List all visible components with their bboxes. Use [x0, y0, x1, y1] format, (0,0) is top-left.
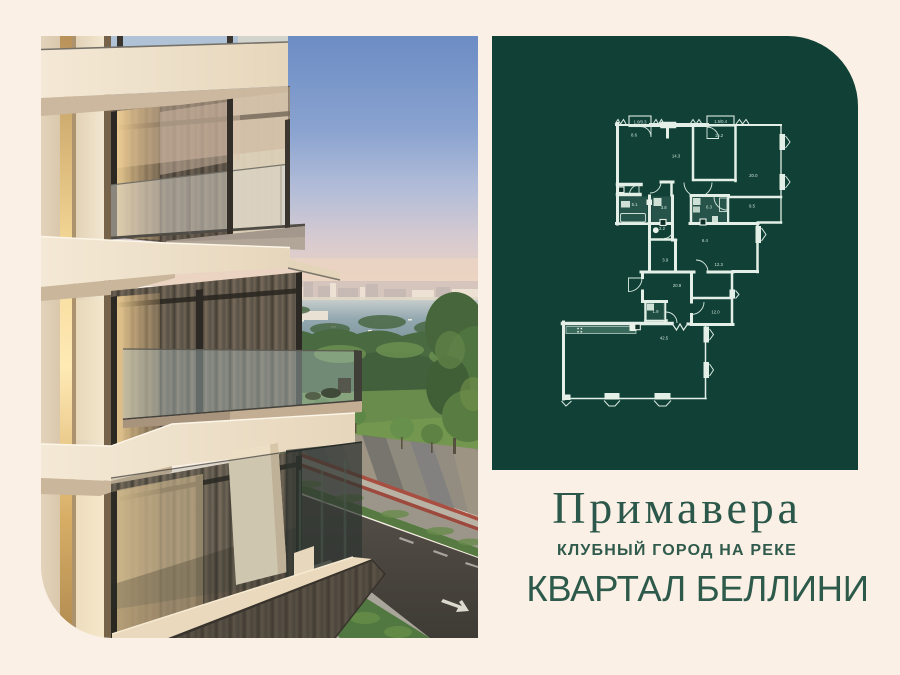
svg-text:1.9: 1.9	[653, 309, 660, 314]
svg-text:20.9: 20.9	[673, 283, 682, 288]
svg-text:2.2: 2.2	[659, 226, 666, 231]
svg-text:12.3: 12.3	[715, 262, 724, 267]
svg-text:20.0: 20.0	[749, 173, 758, 178]
svg-text:1.5/0.4: 1.5/0.4	[714, 119, 727, 124]
svg-text:15.2: 15.2	[715, 133, 724, 138]
svg-text:5.1: 5.1	[632, 202, 639, 207]
svg-text:1.0/0.3: 1.0/0.3	[634, 119, 647, 124]
svg-text:3.9: 3.9	[662, 258, 669, 263]
svg-text:9.5: 9.5	[749, 204, 756, 209]
svg-text:8.6: 8.6	[631, 133, 638, 138]
svg-text:6.4: 6.4	[702, 238, 709, 243]
svg-text:42.5: 42.5	[660, 336, 669, 341]
svg-text:6.3: 6.3	[706, 205, 713, 210]
svg-text:12.0: 12.0	[711, 310, 720, 315]
svg-text:14.3: 14.3	[672, 154, 681, 159]
svg-text:3.8: 3.8	[661, 205, 668, 210]
